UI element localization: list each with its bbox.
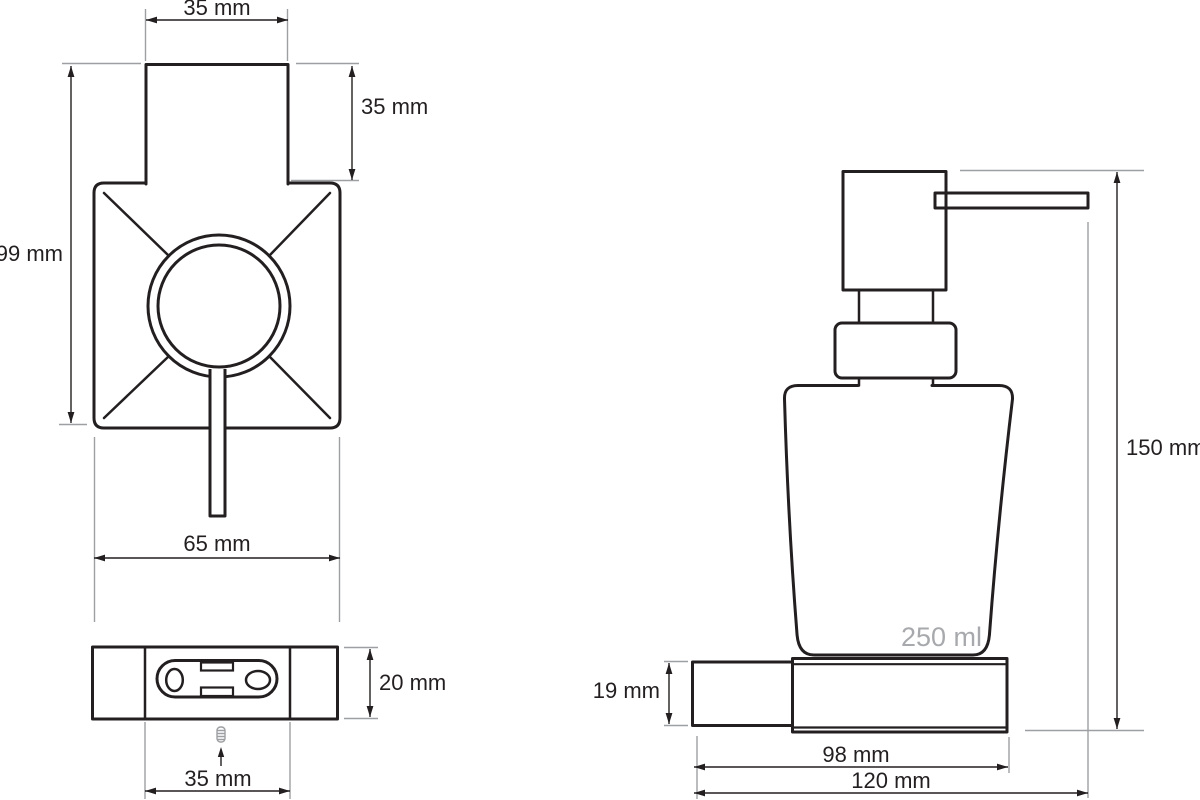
dispenser-technical-drawing: 250 ml 35 mm 35 mm 99 mm 65 mm 20 mm [0, 0, 1200, 800]
side-spout [935, 193, 1088, 208]
front-suction-tube [210, 369, 225, 516]
dim-label: 20 mm [379, 670, 446, 695]
side-holder [793, 659, 1008, 733]
bottom-hole-left [166, 669, 183, 691]
screw-pointer-arrow [218, 747, 224, 766]
front-view [94, 65, 340, 517]
dim-label: 150 mm [1126, 435, 1200, 460]
dim-front-top-width: 35 mm [146, 0, 289, 61]
dim-label: 120 mm [851, 768, 930, 793]
dim-label: 35 mm [361, 94, 428, 119]
bottom-notch-top [201, 663, 233, 671]
dim-front-total-height: 99 mm [0, 64, 141, 425]
dim-label: 98 mm [822, 742, 889, 767]
bottom-notch-bottom [201, 688, 233, 697]
dim-label: 65 mm [183, 531, 250, 556]
side-view: 250 ml [693, 172, 1089, 733]
bottom-body [93, 647, 338, 719]
front-holder-ring [148, 235, 290, 377]
capacity-label: 250 ml [901, 622, 982, 652]
side-collar [835, 323, 956, 378]
dim-side-holder-height: 19 mm [593, 662, 688, 726]
side-pump-neck [859, 290, 933, 323]
dim-label: 35 mm [184, 766, 251, 791]
bottom-view [93, 647, 338, 766]
dim-side-total-height: 150 mm [960, 171, 1200, 731]
dim-label: 19 mm [593, 678, 660, 703]
dim-front-pump-height: 35 mm [291, 64, 428, 181]
dim-label: 35 mm [183, 0, 250, 20]
dim-bottom-depth: 20 mm [344, 648, 446, 719]
front-pump-body [146, 65, 288, 185]
dim-label: 99 mm [0, 241, 63, 266]
side-pump-body [843, 172, 946, 291]
technical-drawing-page: 250 ml 35 mm 35 mm 99 mm 65 mm 20 mm [0, 0, 1200, 800]
dim-side-total-width: 120 mm [694, 222, 1088, 798]
side-bottle [784, 386, 1012, 656]
side-wall-arm [693, 662, 793, 726]
screw-icon [217, 727, 225, 742]
bottom-hole-right [246, 671, 270, 689]
